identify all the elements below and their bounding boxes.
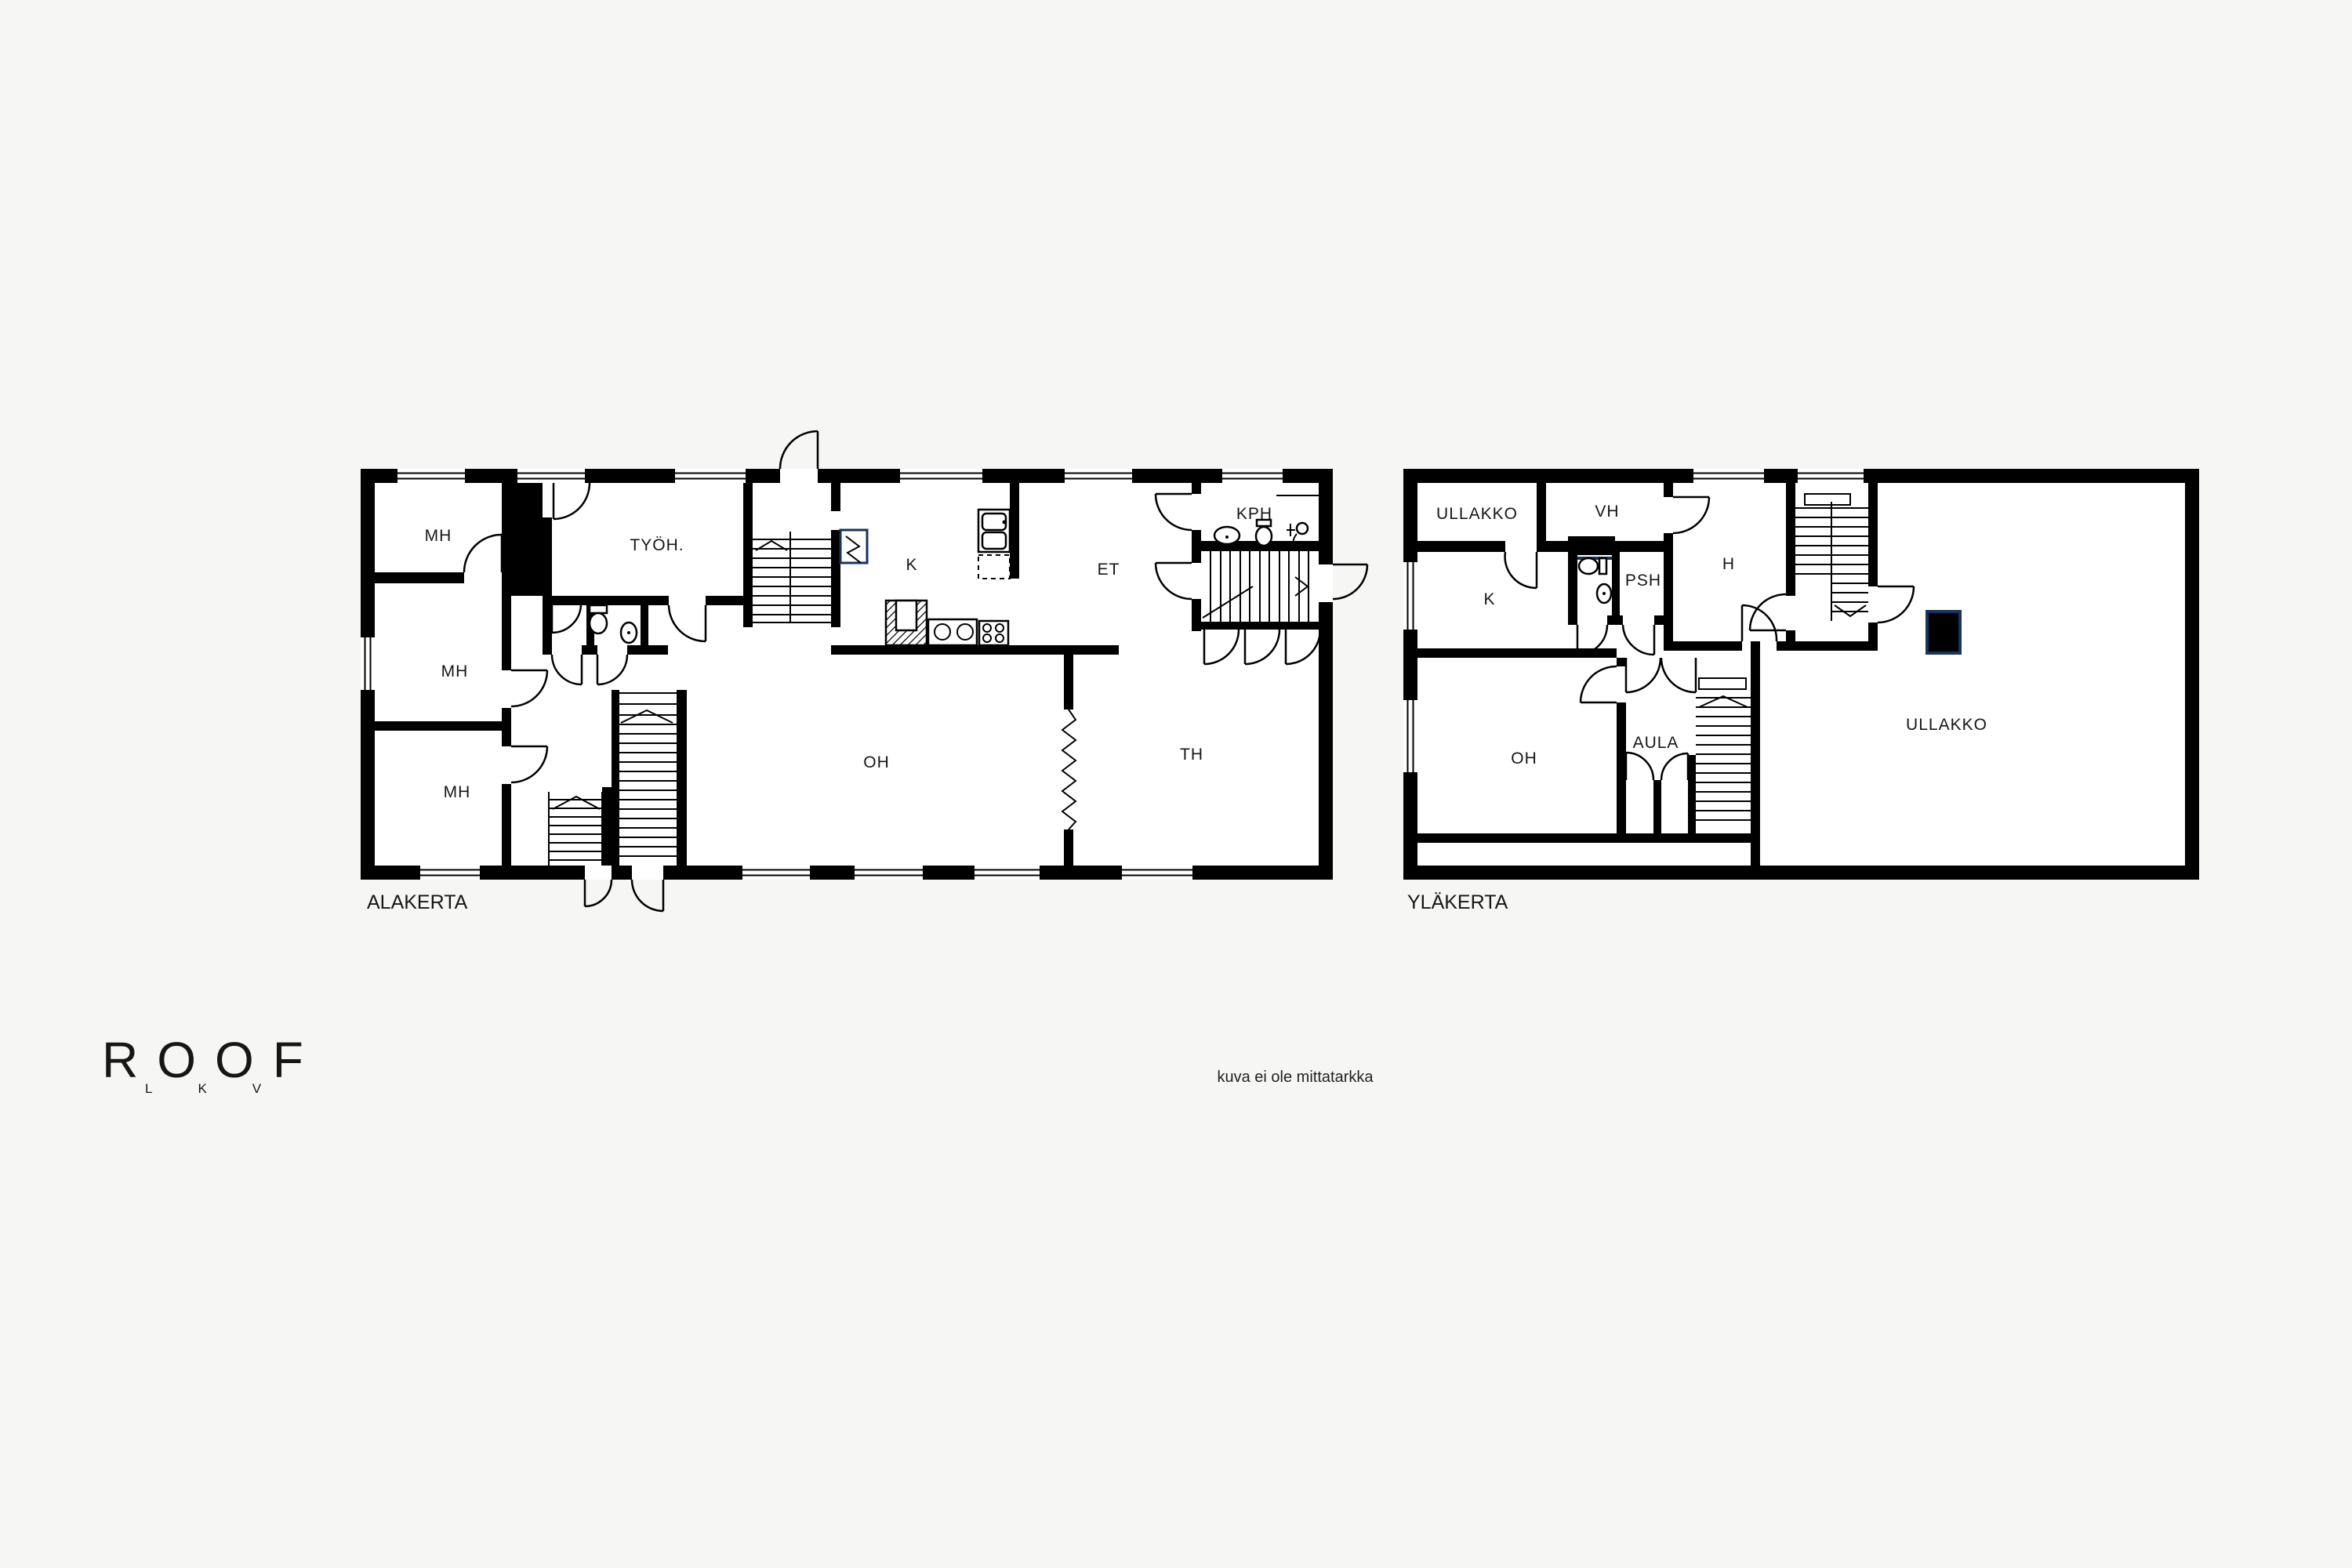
door-arc xyxy=(1319,564,1367,602)
wall-niche xyxy=(1276,483,1319,495)
chimney-icon xyxy=(1927,612,1960,653)
window xyxy=(1222,469,1283,483)
room-label-eteinen: ET xyxy=(1098,561,1120,579)
room-label-keittio-2: K xyxy=(1483,590,1495,608)
ylakerta-plan: ULLAKKO VH K PSH H OH AULA ULLAKKO YLÄKE… xyxy=(1403,469,2199,913)
window xyxy=(855,866,923,880)
toilet-icon xyxy=(1256,520,1272,546)
room-label-kylpyhuone: KPH xyxy=(1236,505,1272,523)
room-label-ullakko-main: ULLAKKO xyxy=(1906,716,1987,734)
alakerta-plan: MH MH MH TYÖH. K ET KPH OH TH ALAKERTA xyxy=(361,431,1367,913)
room-label-pesuhuone: PSH xyxy=(1625,572,1661,590)
sink-icon xyxy=(1597,584,1611,603)
agency-logo: ROOF LKV xyxy=(102,1032,322,1096)
room-label-aula: AULA xyxy=(1633,734,1679,752)
window xyxy=(675,469,746,483)
room-label-ullakko-left: ULLAKKO xyxy=(1436,505,1518,523)
window xyxy=(1122,866,1192,880)
alakerta-floor-label: ALAKERTA xyxy=(367,891,468,913)
window xyxy=(1798,469,1864,483)
door-arc xyxy=(632,866,663,911)
window xyxy=(420,866,480,880)
room-label-mh-mid: MH xyxy=(441,662,469,681)
window xyxy=(1693,469,1764,483)
ylakerta-floor-label: YLÄKERTA xyxy=(1407,891,1508,913)
room-label-huone: H xyxy=(1722,555,1735,573)
window xyxy=(900,469,982,483)
ylakerta-exterior-walls xyxy=(1403,469,2199,880)
room-label-olohuone: OH xyxy=(863,753,890,771)
window xyxy=(517,469,585,483)
room-label-mh-top: MH xyxy=(425,527,452,545)
door-arc xyxy=(585,866,612,906)
room-label-mh-bottom: MH xyxy=(444,783,471,801)
water-heater-icon xyxy=(840,530,867,563)
logo-title: ROOF xyxy=(102,1032,322,1088)
fireplace-icon xyxy=(886,601,927,645)
room-label-takkahuone: TH xyxy=(1180,746,1203,764)
door-arc xyxy=(780,431,818,483)
toilet-icon xyxy=(590,605,607,633)
window xyxy=(397,469,465,483)
scale-disclaimer: kuva ei ole mittatarkka xyxy=(1218,1069,1374,1086)
flue-block xyxy=(506,483,543,596)
window xyxy=(361,637,375,690)
room-label-keittio: K xyxy=(906,556,917,574)
toilet-icon xyxy=(1579,558,1606,574)
sink-icon xyxy=(621,622,637,643)
window xyxy=(1403,700,1417,772)
stove-icon xyxy=(928,619,1008,645)
room-label-tyohuone: TYÖH. xyxy=(630,536,684,554)
bathroom-sink-icon xyxy=(1214,527,1240,544)
window xyxy=(975,866,1040,880)
room-label-vaatehuone: VH xyxy=(1595,503,1619,521)
room-label-olohuone-2: OH xyxy=(1511,750,1537,768)
window xyxy=(1403,562,1417,630)
logo-subtitle: LKV xyxy=(145,1081,307,1096)
floorplan-canvas: MH MH MH TYÖH. K ET KPH OH TH ALAKERTA xyxy=(0,0,2352,1568)
window xyxy=(1065,469,1132,483)
window xyxy=(742,866,810,880)
